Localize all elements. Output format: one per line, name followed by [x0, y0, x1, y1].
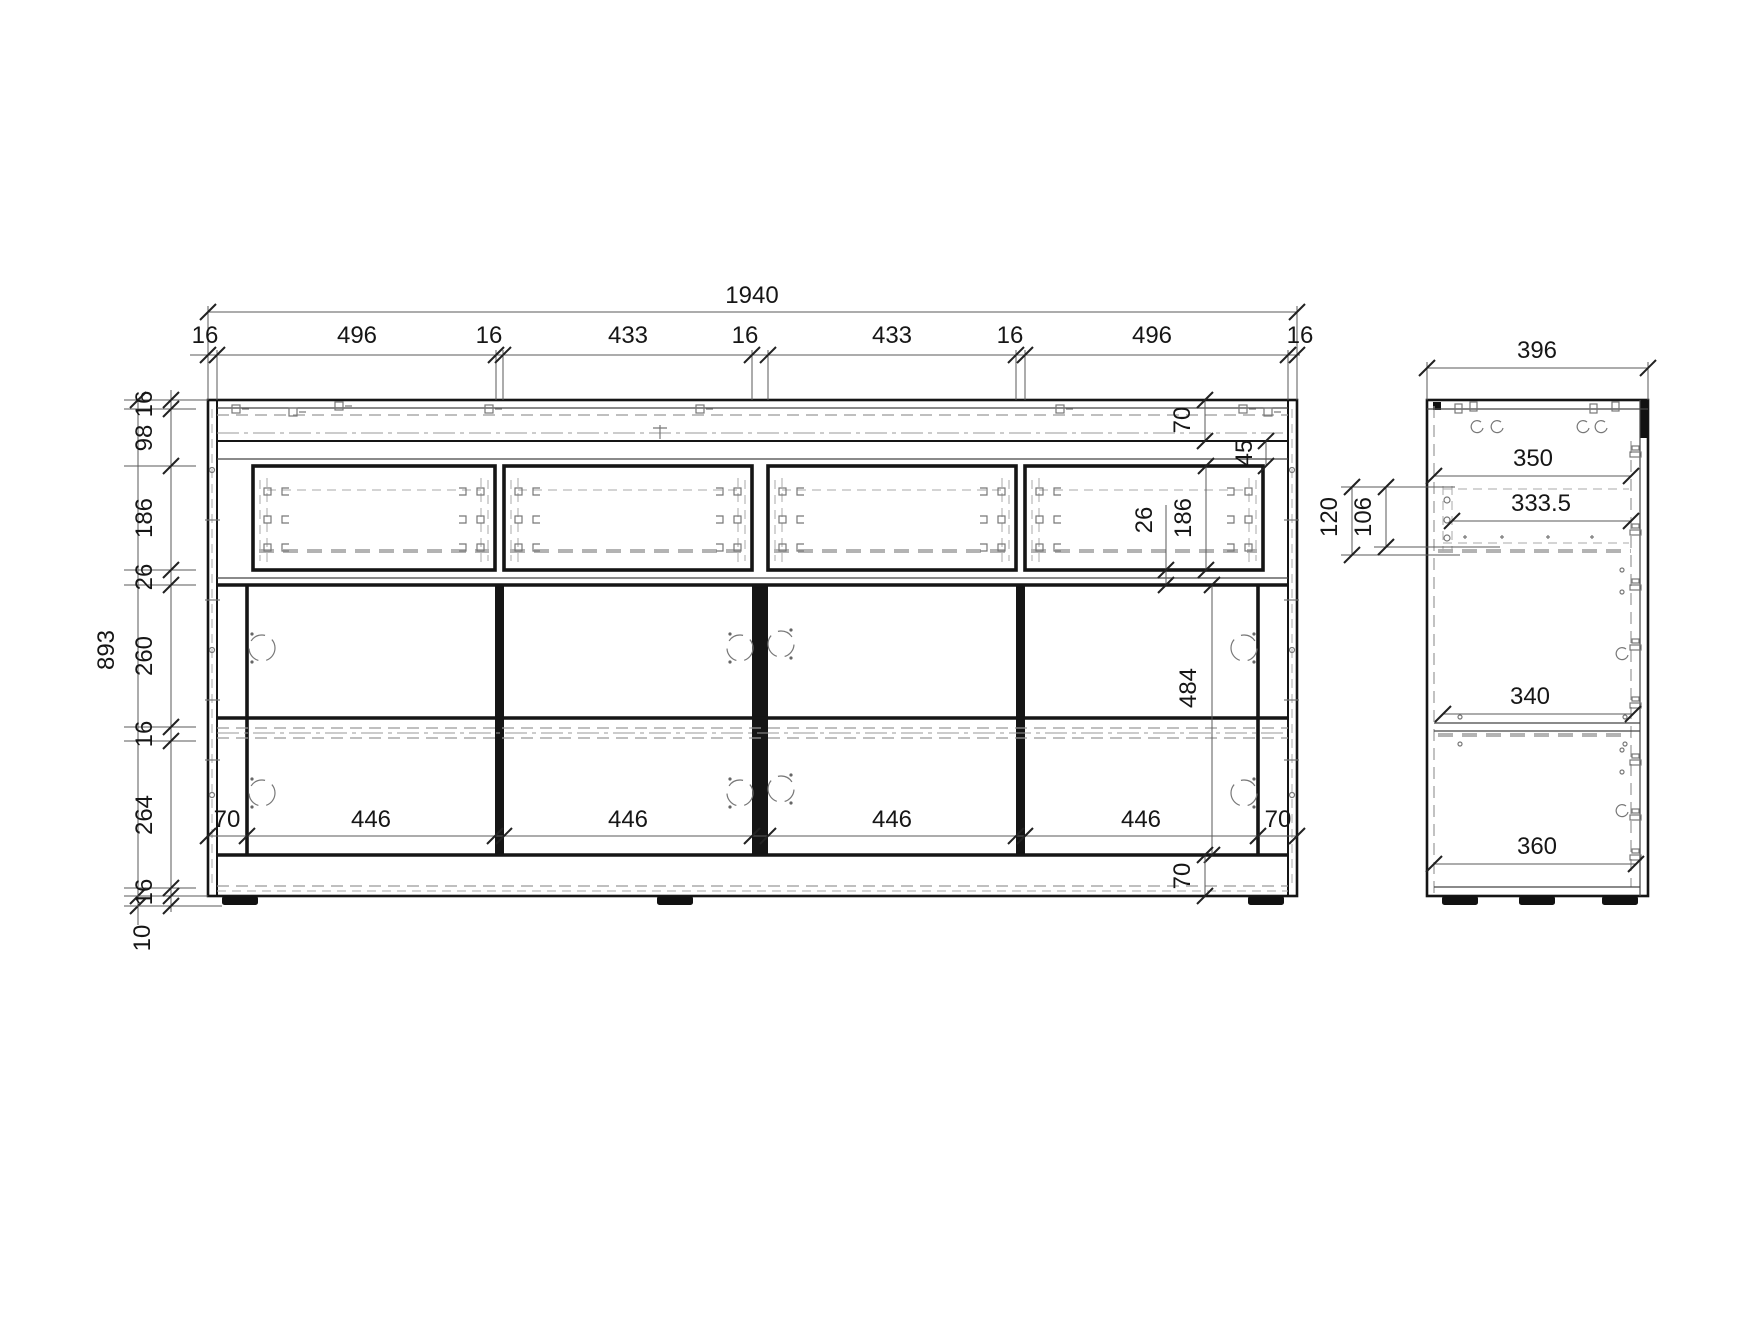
- dim-bottom-depth-360: 360: [1517, 833, 1557, 860]
- dim-left-260: 260: [131, 636, 158, 676]
- drawer-front-3: [768, 466, 1016, 570]
- dim-door4-446: 446: [1121, 806, 1161, 833]
- dim-overall-depth: 396: [1517, 337, 1557, 364]
- dim-top-rail-70: 70: [1169, 407, 1196, 434]
- dim-hinge-45: 45: [1231, 440, 1258, 467]
- dim-overall-height: 893: [93, 630, 120, 670]
- dim-top-16e: 16: [1287, 322, 1314, 349]
- dim-left-16b: 16: [131, 721, 158, 748]
- drawer-front-1: [253, 466, 495, 570]
- dim-top-433a: 433: [608, 322, 648, 349]
- dim-left-186: 186: [131, 498, 158, 538]
- dim-shelf-depth-340: 340: [1510, 683, 1550, 710]
- dim-feet-height: 10: [129, 925, 156, 952]
- technical-drawing-page: { "front_view": { "overall_width": "1940…: [0, 0, 1762, 1321]
- dim-opening-484: 484: [1175, 668, 1202, 708]
- dim-top-496a: 496: [337, 322, 377, 349]
- back-panel-fittings: [1616, 446, 1641, 860]
- dim-top-16d: 16: [997, 322, 1024, 349]
- sideboard-cad-drawing: 1940 16 496 16 433 16 433 16 496 16 893: [0, 0, 1762, 1321]
- side-foot-back: [1602, 896, 1638, 905]
- dim-left-16a: 16: [131, 391, 158, 418]
- drawer-screw-marks: [1463, 535, 1594, 539]
- side-top-fittings: [1455, 402, 1619, 433]
- dim-drawer-depth-333: 333.5: [1511, 490, 1571, 517]
- dim-slide-106: 106: [1350, 497, 1377, 537]
- dim-top-16c: 16: [732, 322, 759, 349]
- dim-overall-width: 1940: [725, 282, 778, 309]
- dim-door3-446: 446: [872, 806, 912, 833]
- dim-left-16c: 16: [131, 879, 158, 906]
- dim-top-16b: 16: [476, 322, 503, 349]
- side-foot-mid: [1519, 896, 1555, 905]
- dim-top-496b: 496: [1132, 322, 1172, 349]
- side-foot-front: [1442, 896, 1478, 905]
- dim-left-264: 264: [131, 795, 158, 835]
- dim-plinth-70: 70: [1169, 863, 1196, 890]
- foot-right: [1248, 896, 1284, 905]
- dim-slide-120: 120: [1316, 497, 1343, 537]
- dim-door-offset-left: 70: [214, 806, 241, 833]
- side-dimensions: 396 350 333.5 120 106 340 360: [1316, 337, 1656, 872]
- drawer-front-2: [504, 466, 752, 570]
- dim-door2-446: 446: [608, 806, 648, 833]
- front-dimensions: 1940 16 496 16 433 16 433 16 496 16 893: [93, 282, 1313, 951]
- dim-door-offset-right: 70: [1265, 806, 1292, 833]
- dim-top-16a: 16: [192, 322, 219, 349]
- dim-drawer-186: 186: [1170, 498, 1197, 538]
- dim-top-depth-350: 350: [1513, 445, 1553, 472]
- foot-left: [222, 896, 258, 905]
- dim-door1-446: 446: [351, 806, 391, 833]
- dim-gap-26: 26: [1131, 507, 1158, 534]
- dim-left-98: 98: [131, 425, 158, 452]
- dim-top-433b: 433: [872, 322, 912, 349]
- foot-center: [657, 896, 693, 905]
- dim-left-26: 26: [131, 564, 158, 591]
